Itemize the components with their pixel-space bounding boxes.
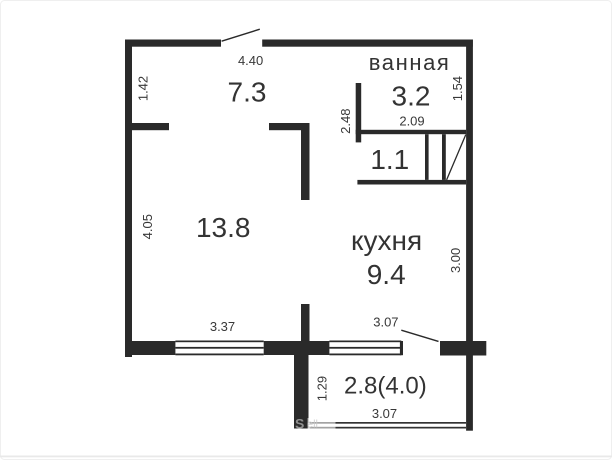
svg-text:9.4: 9.4 bbox=[367, 259, 406, 290]
svg-text:1.42: 1.42 bbox=[135, 76, 150, 101]
svg-text:S: S bbox=[295, 416, 304, 432]
svg-text:1.54: 1.54 bbox=[450, 76, 465, 101]
svg-text:2.48: 2.48 bbox=[338, 109, 353, 134]
svg-text:3.2: 3.2 bbox=[392, 81, 431, 112]
svg-text:кухня: кухня bbox=[351, 225, 422, 256]
svg-text:3.37: 3.37 bbox=[210, 319, 235, 334]
svg-text:ванная: ванная bbox=[369, 50, 451, 75]
svg-text:1.29: 1.29 bbox=[315, 376, 330, 401]
svg-text:3.07: 3.07 bbox=[373, 315, 398, 330]
svg-text:4.40: 4.40 bbox=[238, 53, 263, 68]
svg-text:3.07: 3.07 bbox=[372, 406, 397, 421]
svg-text:4.05: 4.05 bbox=[140, 214, 155, 239]
svg-text:3.00: 3.00 bbox=[448, 248, 463, 273]
svg-text:7.3: 7.3 bbox=[228, 76, 267, 107]
svg-text:ell: ell bbox=[307, 419, 318, 431]
svg-text:13.8: 13.8 bbox=[196, 212, 251, 243]
svg-text:1.1: 1.1 bbox=[370, 144, 409, 175]
svg-text:2.8(4.0): 2.8(4.0) bbox=[344, 372, 427, 399]
svg-text:2.09: 2.09 bbox=[399, 114, 424, 129]
